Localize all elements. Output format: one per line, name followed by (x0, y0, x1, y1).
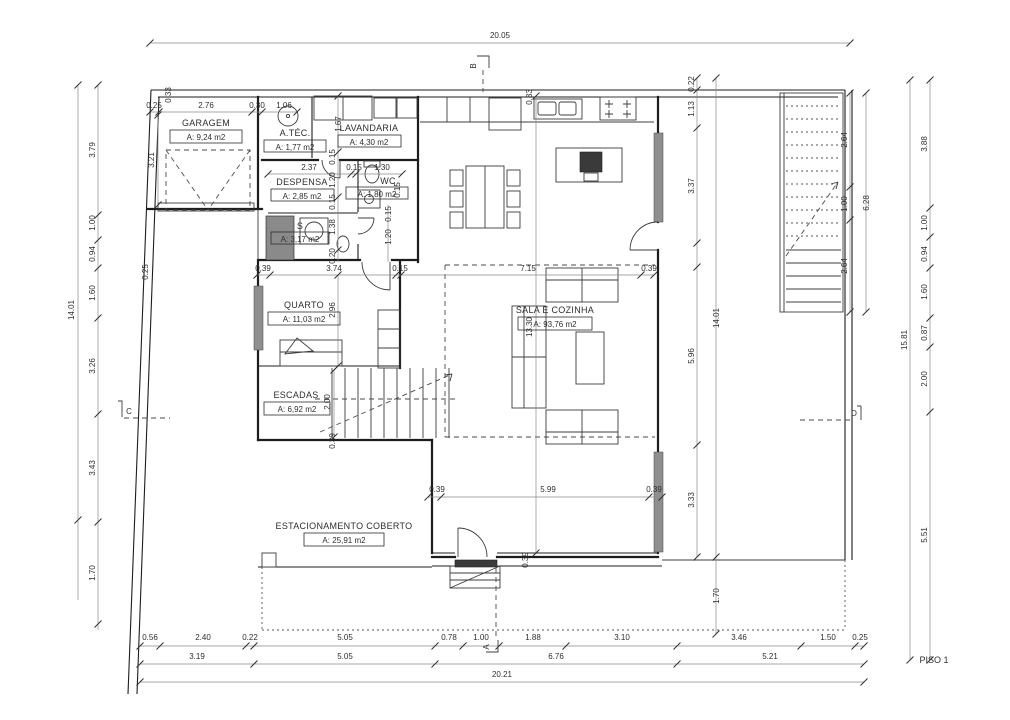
dimension-label: 0.22 (242, 633, 258, 642)
room-label-despensa: DESPENSA A: 2,85 m2 (271, 177, 334, 201)
dimension-label: 0.39 (429, 485, 445, 494)
dimension-label: 0.94 (88, 246, 97, 262)
bedroom-window (254, 286, 263, 350)
upper-floor-projection (445, 265, 655, 437)
site-wall-top (151, 90, 845, 97)
dimension-label: 2.64 (840, 132, 849, 148)
room-name: LAVANDARIA (340, 123, 399, 133)
entry-door (458, 528, 487, 557)
floor-plan-drawing: 20.050.252.760.301.060.333.210.253.791.0… (0, 0, 1010, 720)
room-area: A: 25,91 m2 (322, 536, 366, 545)
cooktop (600, 97, 636, 120)
entry-steps (450, 566, 500, 588)
parking-column (262, 553, 276, 567)
dimension-label: 0.39 (328, 433, 337, 449)
dimension-label: 1.60 (88, 285, 97, 301)
dimension-label: 0.15 (392, 264, 408, 273)
room-area: A: 4,30 m2 (350, 138, 389, 147)
coffee-table (576, 332, 604, 384)
room-area: A: 2,85 m2 (283, 192, 322, 201)
dimension-label: 1.60 (920, 284, 929, 300)
bedroom-door (362, 262, 390, 290)
dimension-label: 5.21 (762, 652, 778, 661)
dimension-label: 0.56 (142, 633, 158, 642)
dimension-label: 3.33 (687, 492, 696, 508)
room-label-atec: A.TÉC. A: 1,77 m2 (264, 128, 326, 152)
dimension-label: 2.37 (301, 163, 317, 172)
dimension-label: 3.46 (731, 633, 747, 642)
dimension-label: 1.88 (525, 633, 541, 642)
island-stove (580, 152, 602, 172)
room-area: A: 93,76 m2 (533, 320, 577, 329)
washer (374, 98, 396, 118)
kitchen-window (654, 133, 663, 222)
room-name: DESPENSA (276, 177, 327, 187)
windows (158, 133, 663, 552)
wc-door (358, 218, 374, 234)
dimension-label: 1.70 (712, 588, 721, 604)
dimension-label: 6.28 (862, 195, 871, 211)
dimension-label: 1.00 (920, 215, 929, 231)
stairs-interior (315, 368, 458, 438)
dimension-label: 0.78 (441, 633, 457, 642)
dimension-label: 2.40 (195, 633, 211, 642)
dimension-label: 0.25 (141, 264, 150, 280)
dimension-label: 0.30 (249, 101, 265, 110)
dimension-label: 0.94 (920, 246, 929, 262)
kitchen-terrace-door (630, 222, 658, 250)
dimension-label: 0.15 (384, 206, 393, 222)
section-marker-d: D (800, 406, 861, 420)
room-label-estacionamento: ESTACIONAMENTO COBERTO A: 25,91 m2 (276, 521, 413, 546)
section-letter: C (126, 407, 132, 416)
dimension-label: 7.15 (520, 264, 536, 273)
room-name: QUARTO (284, 300, 324, 310)
fridge (489, 98, 521, 130)
room-area: A: 6,92 m2 (278, 405, 317, 414)
dimension-label: 20.05 (490, 31, 511, 40)
room-area: A: 9,24 m2 (187, 133, 226, 142)
dimension-label: 0.87 (920, 325, 929, 341)
dining-furniture (450, 166, 520, 228)
dimension-label: 1.00 (88, 215, 97, 231)
chair (450, 212, 463, 228)
dimension-label: 5.51 (920, 527, 929, 543)
living-window (654, 452, 663, 552)
room-name: SALA E COZINHA (516, 305, 594, 315)
dimension-label: 14.01 (67, 299, 76, 320)
garage-door-swing (166, 150, 250, 210)
dimension-label: 1.00 (840, 196, 849, 212)
doors (322, 160, 658, 557)
room-label-garagem: GARAGEM A: 9,24 m2 (170, 118, 242, 143)
dimension-label: 1.50 (820, 633, 836, 642)
chair (507, 212, 520, 228)
dimension-label: 0.39 (521, 552, 530, 568)
dimension-label: 3.74 (326, 264, 342, 273)
dimension-label: 0.22 (687, 76, 696, 92)
room-area: A: 1,80 m2 (358, 190, 397, 199)
site-boundary (128, 90, 852, 694)
section-letter: A (482, 644, 491, 650)
dimension-label: 2.96 (328, 302, 337, 318)
room-name: A.TÉC. (280, 128, 311, 138)
stairs-exterior (780, 93, 843, 312)
sink-bowl (559, 102, 576, 115)
dimension-label: 1.13 (687, 101, 696, 117)
dimension-label: 1.00 (473, 633, 489, 642)
living-furniture (512, 268, 618, 444)
dimension-label: 0.33 (164, 87, 173, 103)
dimension-label: 3.88 (920, 136, 929, 152)
section-marker-c: C (118, 401, 170, 418)
floor-title: PISO 1 (919, 655, 948, 665)
dimension-label: 3.26 (88, 358, 97, 374)
dimension-label: 1.20 (328, 172, 337, 188)
room-area: A: 3,17 m2 (281, 235, 320, 244)
dimension-label: 0.39 (255, 264, 271, 273)
section-letter: B (469, 63, 478, 68)
dimension-label: 3.19 (189, 652, 205, 661)
dimension-label: 0.20 (328, 248, 337, 264)
dimension-label: 2.76 (198, 101, 214, 110)
dimension-label: 1.06 (276, 101, 292, 110)
dimension-label: 0.15 (328, 149, 337, 165)
dimension-label: 3.21 (147, 152, 156, 168)
dimension-label: 0.39 (641, 264, 657, 273)
dimension-label: 0.39 (646, 485, 662, 494)
dimension-label: 3.43 (88, 460, 97, 476)
dimension-label: 3.79 (88, 142, 97, 158)
dimension-label: 3.37 (687, 178, 696, 194)
dimension-label: 0.25 (146, 101, 162, 110)
room-label-lavandaria: LAVANDARIA A: 4,30 m2 (338, 123, 401, 147)
room-name: ESTACIONAMENTO COBERTO (276, 521, 413, 531)
chair (450, 191, 463, 207)
dimension-label: 1.20 (384, 229, 393, 245)
dimension-label: 5.05 (337, 652, 353, 661)
sink-bowl (538, 102, 556, 115)
dimension-label: 14.01 (712, 307, 721, 328)
dimension-label: 2.64 (840, 258, 849, 274)
chair (450, 170, 463, 186)
floor-plan-canvas: 20.050.252.760.301.060.333.210.253.791.0… (0, 0, 1010, 720)
dimension-label: 6.76 (548, 652, 564, 661)
room-area: A: 1,77 m2 (276, 143, 315, 152)
walls (148, 97, 845, 567)
terrace-outline (262, 560, 845, 630)
dimension-label: 0.25 (852, 633, 868, 642)
room-name: GARAGEM (182, 118, 230, 128)
room-name: ESCADAS (273, 390, 318, 400)
dimension-label: 5.99 (540, 485, 556, 494)
wardrobe (378, 310, 400, 368)
room-name: WC (380, 176, 396, 186)
chair (507, 191, 520, 207)
room-label-escadas: ESCADAS A: 6,92 m2 (264, 390, 330, 415)
dimension-label: 0.15 (328, 194, 337, 210)
property-line-left (128, 90, 159, 694)
dimension-label: 0.15 (346, 163, 362, 172)
dimension-labels: 20.050.252.760.301.060.333.210.253.791.0… (67, 31, 929, 679)
section-marker-b: B (469, 56, 489, 92)
dimension-label: 15.81 (900, 329, 909, 350)
dimension-label: 5.96 (687, 348, 696, 364)
dimension-label: 3.10 (614, 633, 630, 642)
dryer (397, 98, 417, 118)
site-wall-right (845, 90, 852, 560)
room-name: S (297, 221, 303, 231)
room-area: A: 11,03 m2 (283, 315, 326, 324)
dimension-label: 1.30 (374, 163, 390, 172)
bed (280, 340, 342, 366)
section-letter: D (851, 409, 857, 418)
dimension-label: 1.70 (88, 565, 97, 581)
chair (507, 170, 520, 186)
dimension-label: 5.05 (337, 633, 353, 642)
dimension-label: 20.21 (492, 670, 513, 679)
dimension-label: 2.00 (920, 371, 929, 387)
dimension-label: 0.33 (525, 89, 534, 105)
